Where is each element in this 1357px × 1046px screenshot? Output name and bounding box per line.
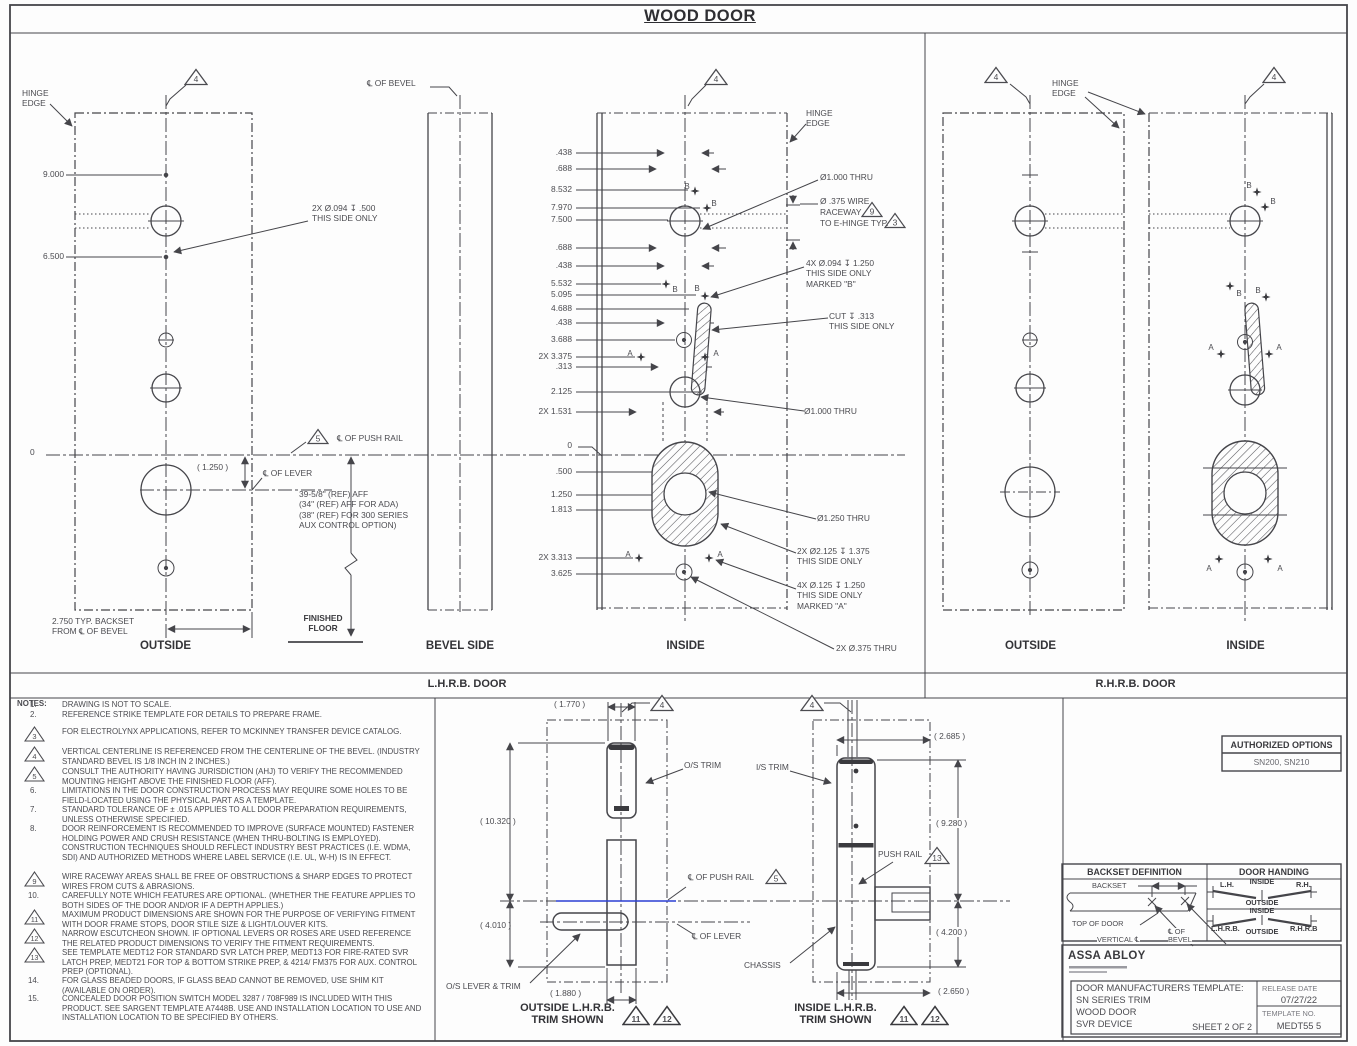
flag-12-icon: 12 <box>653 1005 681 1026</box>
hole-callout: Ø1.250 THRU <box>817 513 870 523</box>
dim-label: 3.625 <box>498 568 572 578</box>
dim-label: 5.095 <box>498 289 572 299</box>
handing-inside-label: INSIDE <box>1232 877 1292 886</box>
hole-callout: 4X Ø.094 ↧ 1.250 THIS SIDE ONLY MARKED "… <box>806 258 874 289</box>
view-caption-inside: INSIDE <box>1193 640 1298 652</box>
backset-note: 2.750 TYP. BACKSET FROM ℄ OF BEVEL <box>52 616 134 637</box>
flag-4-icon: 4 <box>1262 66 1286 84</box>
note-number: 15. <box>28 994 54 1003</box>
finished-floor-label: FINISHED FLOOR <box>283 613 363 634</box>
dim-label: .500 <box>498 466 572 476</box>
product-line: SN SERIES TRIM <box>1076 995 1151 1006</box>
cut-callout: CUT ↧ .313 THIS SIDE ONLY <box>829 311 894 332</box>
wire-raceway-callout: TO E-HINGE TYP. <box>820 218 888 228</box>
backset-label: BACKSET <box>1092 881 1127 890</box>
flag-4-icon: 4 <box>650 694 674 712</box>
dim-label: 1.813 <box>498 504 572 514</box>
dim-label: .688 <box>498 163 572 173</box>
svg-text:9: 9 <box>32 877 36 886</box>
sheet-number: SHEET 2 OF 2 <box>1150 1022 1252 1033</box>
svg-text:4: 4 <box>660 700 665 710</box>
dim-label: 5.532 <box>498 278 572 288</box>
dim-label: 7.500 <box>498 214 572 224</box>
note-number: 10. <box>28 891 54 900</box>
os-trim-label: O/S TRIM <box>684 760 721 770</box>
flag-11-icon: 11 <box>890 1005 918 1026</box>
push-rail-label: PUSH RAIL <box>878 849 922 859</box>
hole-callout: 2X Ø.375 THRU <box>836 643 897 653</box>
wire-raceway-callout: Ø .375 WIRE <box>820 196 869 206</box>
hole-callout: 4X Ø.125 ↧ 1.250 THIS SIDE ONLY MARKED "… <box>797 580 865 611</box>
svg-text:B: B <box>1246 181 1251 190</box>
flag-4-icon: 4 <box>184 68 208 86</box>
handing-inside-label: INSIDE <box>1232 906 1292 915</box>
flag-13-icon: 13 <box>924 846 950 865</box>
assa-abloy-logo: ASSA ABLOY <box>1068 950 1146 962</box>
flag-11-icon: 11 <box>622 1005 650 1026</box>
dim-label: 2X 1.531 <box>498 406 572 416</box>
dim-label: ( 4.010 ) <box>480 920 511 930</box>
trim-caption-inside: INSIDE L.H.R.B. TRIM SHOWN <box>778 1002 893 1026</box>
note-number: 1. <box>30 700 56 709</box>
section-label-lhrb: L.H.R.B. DOOR <box>367 678 567 690</box>
cl-lever-label: ℄ OF LEVER <box>692 931 741 941</box>
note-number: 8. <box>30 824 56 833</box>
handing-rh-label: R.H. <box>1296 880 1311 889</box>
hole-callout: 2X Ø2.125 ↧ 1.375 THIS SIDE ONLY <box>797 546 870 567</box>
dim-label: .313 <box>498 361 572 371</box>
note-text: MAXIMUM PRODUCT DIMENSIONS ARE SHOWN FOR… <box>62 910 424 929</box>
dim-label: .438 <box>498 147 572 157</box>
svg-text:3: 3 <box>32 732 36 741</box>
note-text: REFERENCE STRIKE TEMPLATE FOR DETAILS TO… <box>62 710 424 720</box>
handing-outside-label: OUTSIDE <box>1232 927 1292 936</box>
trim-caption-outside: OUTSIDE L.H.R.B. TRIM SHOWN <box>510 1002 625 1026</box>
is-trim-label: I/S TRIM <box>756 762 789 772</box>
dim-label: 8.532 <box>498 184 572 194</box>
hole-callout: 2X Ø.094 ↧ .500 THIS SIDE ONLY <box>312 203 377 224</box>
hinge-edge-label: HINGE EDGE <box>1052 78 1079 99</box>
svg-text:5: 5 <box>774 874 779 884</box>
svg-text:4: 4 <box>714 74 719 84</box>
drawing-sheet: B B B B A A A A B B B B A A A A WOOD DOO… <box>0 0 1357 1046</box>
note-flag-icon: 3 <box>24 726 45 742</box>
dim-label: ( 9.280 ) <box>936 818 967 828</box>
svg-text:4: 4 <box>1272 72 1277 82</box>
note-number: 14. <box>28 976 54 985</box>
section-label-rhrb: R.H.R.B. DOOR <box>1028 678 1243 690</box>
flag-4-icon: 4 <box>984 66 1008 84</box>
flag-4-icon: 4 <box>704 68 728 86</box>
note-text: NARROW ESCUTCHEON SHOWN. IF OPTIONAL LEV… <box>62 929 424 948</box>
svg-text:4: 4 <box>994 72 999 82</box>
template-title: DOOR MANUFACTURERS TEMPLATE: <box>1076 983 1244 994</box>
svg-text:12: 12 <box>31 936 39 943</box>
cl-push-rail-label: ℄ OF PUSH RAIL <box>337 433 403 443</box>
dim-label: 2X 3.375 <box>498 351 572 361</box>
product-line: WOOD DOOR <box>1076 1007 1136 1018</box>
hinge-edge-label: HINGE EDGE <box>806 108 833 129</box>
note-flag-icon: 5 <box>24 766 45 782</box>
wire-raceway-callout: RACEWAY <box>820 207 861 217</box>
release-date-label: RELEASE DATE <box>1262 984 1317 993</box>
note-text: FOR ELECTROLYNX APPLICATIONS, REFER TO M… <box>62 727 424 737</box>
os-lever-label: O/S LEVER & TRIM <box>446 981 521 991</box>
dim-label: ( 1.880 ) <box>550 988 581 998</box>
dim-label: 3.688 <box>498 334 572 344</box>
release-date-value: 07/27/22 <box>1257 995 1341 1006</box>
svg-text:B: B <box>1236 289 1241 298</box>
svg-text:12: 12 <box>930 1014 940 1024</box>
svg-text:A: A <box>627 349 633 358</box>
dim-label: 4.688 <box>498 303 572 313</box>
cl-of-bevel-label: ℄ OF BEVEL <box>367 78 416 88</box>
dim-label: 9.000 <box>18 169 64 179</box>
cl-of-bevel-label: ℄ OF BEVEL <box>1168 928 1192 944</box>
svg-text:B: B <box>1255 286 1260 295</box>
dim-label: 2.125 <box>498 386 572 396</box>
cl-push-rail-label: ℄ OF PUSH RAIL <box>688 872 754 882</box>
svg-text:13: 13 <box>31 955 39 962</box>
note-text: DOOR REINFORCEMENT IS RECOMMENDED TO IMP… <box>62 824 424 863</box>
svg-text:A: A <box>1206 564 1212 573</box>
template-no-value: MEDT55 5 <box>1257 1021 1341 1032</box>
dim-label: 6.500 <box>18 251 64 261</box>
dim-label: ( 4.200 ) <box>936 927 967 937</box>
dim-label: 2X 3.313 <box>498 552 572 562</box>
dim-label: .688 <box>498 242 572 252</box>
note-number: 7. <box>30 805 56 814</box>
dim-label: ( 10.320 ) <box>480 816 516 826</box>
svg-text:5: 5 <box>316 434 321 444</box>
svg-text:13: 13 <box>932 853 942 863</box>
page-title: WOOD DOOR <box>540 7 860 26</box>
note-text: SEE TEMPLATE MEDT12 FOR STANDARD SVR LAT… <box>62 948 424 977</box>
vertical-cl-label: VERTICAL ℄ <box>1097 935 1140 944</box>
view-caption-outside: OUTSIDE <box>978 640 1083 652</box>
svg-text:12: 12 <box>662 1014 672 1024</box>
svg-text:A: A <box>1277 564 1283 573</box>
zero-label: 0 <box>30 447 35 457</box>
dim-label: 0 <box>498 440 572 450</box>
flag-12-icon: 12 <box>921 1005 949 1026</box>
note-flag-icon: 11 <box>24 909 45 925</box>
dim-label: ( 1.770 ) <box>554 699 585 709</box>
flag-5-icon: 5 <box>307 428 329 445</box>
product-line: SVR DEVICE <box>1076 1019 1132 1030</box>
dim-label: .438 <box>498 317 572 327</box>
note-text: DRAWING IS NOT TO SCALE. <box>62 700 424 710</box>
dim-label: 1.250 <box>498 489 572 499</box>
dim-label: ( 1.250 ) <box>197 462 228 472</box>
note-text: CAREFULLY NOTE WHICH FEATURES ARE OPTION… <box>62 891 424 910</box>
chassis-label: CHASSIS <box>744 960 781 970</box>
view-caption-bevel: BEVEL SIDE <box>400 640 520 652</box>
svg-text:B: B <box>711 199 716 208</box>
cl-lever-label: ℄ OF LEVER <box>263 468 312 478</box>
hole-callout: Ø1.000 THRU <box>820 172 873 182</box>
svg-text:11: 11 <box>632 1014 641 1024</box>
top-of-door-label: TOP OF DOOR <box>1072 919 1123 928</box>
dim-label: 7.970 <box>498 202 572 212</box>
view-caption-outside: OUTSIDE <box>113 640 218 652</box>
note-text: FOR GLASS BEADED DOORS, IF GLASS BEAD CA… <box>62 976 424 995</box>
svg-text:B: B <box>672 285 677 294</box>
svg-text:9: 9 <box>870 207 875 217</box>
svg-text:A: A <box>713 349 719 358</box>
dim-label: ( 2.685 ) <box>934 731 965 741</box>
note-number: 6. <box>30 786 56 795</box>
note-flag-icon: 9 <box>24 871 45 887</box>
svg-text:11: 11 <box>31 917 38 924</box>
svg-text:A: A <box>1208 343 1214 352</box>
note-text: CONCEALED DOOR POSITION SWITCH MODEL 328… <box>62 994 424 1023</box>
dim-label: .438 <box>498 260 572 270</box>
note-text: STANDARD TOLERANCE OF ± .015 APPLIES TO … <box>62 805 424 824</box>
svg-text:B: B <box>694 284 699 293</box>
svg-text:11: 11 <box>900 1014 909 1024</box>
svg-text:4: 4 <box>32 752 36 761</box>
authorized-options-header: AUTHORIZED OPTIONS <box>1222 740 1341 751</box>
note-flag-icon: 13 <box>24 947 45 963</box>
note-text: WIRE RACEWAY AREAS SHALL BE FREE OF OBST… <box>62 872 424 891</box>
note-text: VERTICAL CENTERLINE IS REFERENCED FROM T… <box>62 747 424 766</box>
svg-text:A: A <box>1276 343 1282 352</box>
authorized-options-value: SN200, SN210 <box>1222 757 1341 767</box>
svg-text:3: 3 <box>893 218 898 228</box>
view-caption-inside: INSIDE <box>633 640 738 652</box>
hole-callout: Ø1.000 THRU <box>804 406 857 416</box>
svg-text:5: 5 <box>32 772 36 781</box>
backset-definition-header: BACKSET DEFINITION <box>1062 867 1207 878</box>
svg-text:A: A <box>717 550 723 559</box>
note-number: 2. <box>30 710 56 719</box>
svg-text:B: B <box>1270 197 1275 206</box>
dim-label: ( 2.650 ) <box>938 986 969 996</box>
template-no-label: TEMPLATE NO. <box>1262 1009 1316 1018</box>
svg-text:A: A <box>625 550 631 559</box>
note-flag-icon: 4 <box>24 746 45 762</box>
aff-note: 39-5/8" (REF) AFF (34" (REF) AFF FOR ADA… <box>299 489 408 530</box>
handing-rhrb-label: R.H.R.B <box>1290 924 1318 933</box>
note-text: LIMITATIONS IN THE DOOR CONSTRUCTION PRO… <box>62 786 424 805</box>
svg-text:B: B <box>684 182 689 191</box>
flag-5-icon: 5 <box>765 868 787 885</box>
svg-text:4: 4 <box>194 74 199 84</box>
note-text: CONSULT THE AUTHORITY HAVING JURISDICTIO… <box>62 767 424 786</box>
note-flag-icon: 12 <box>24 928 45 944</box>
svg-text:4: 4 <box>810 700 815 710</box>
hinge-edge-label: HINGE EDGE <box>22 88 49 109</box>
flag-4-icon: 4 <box>800 694 824 712</box>
